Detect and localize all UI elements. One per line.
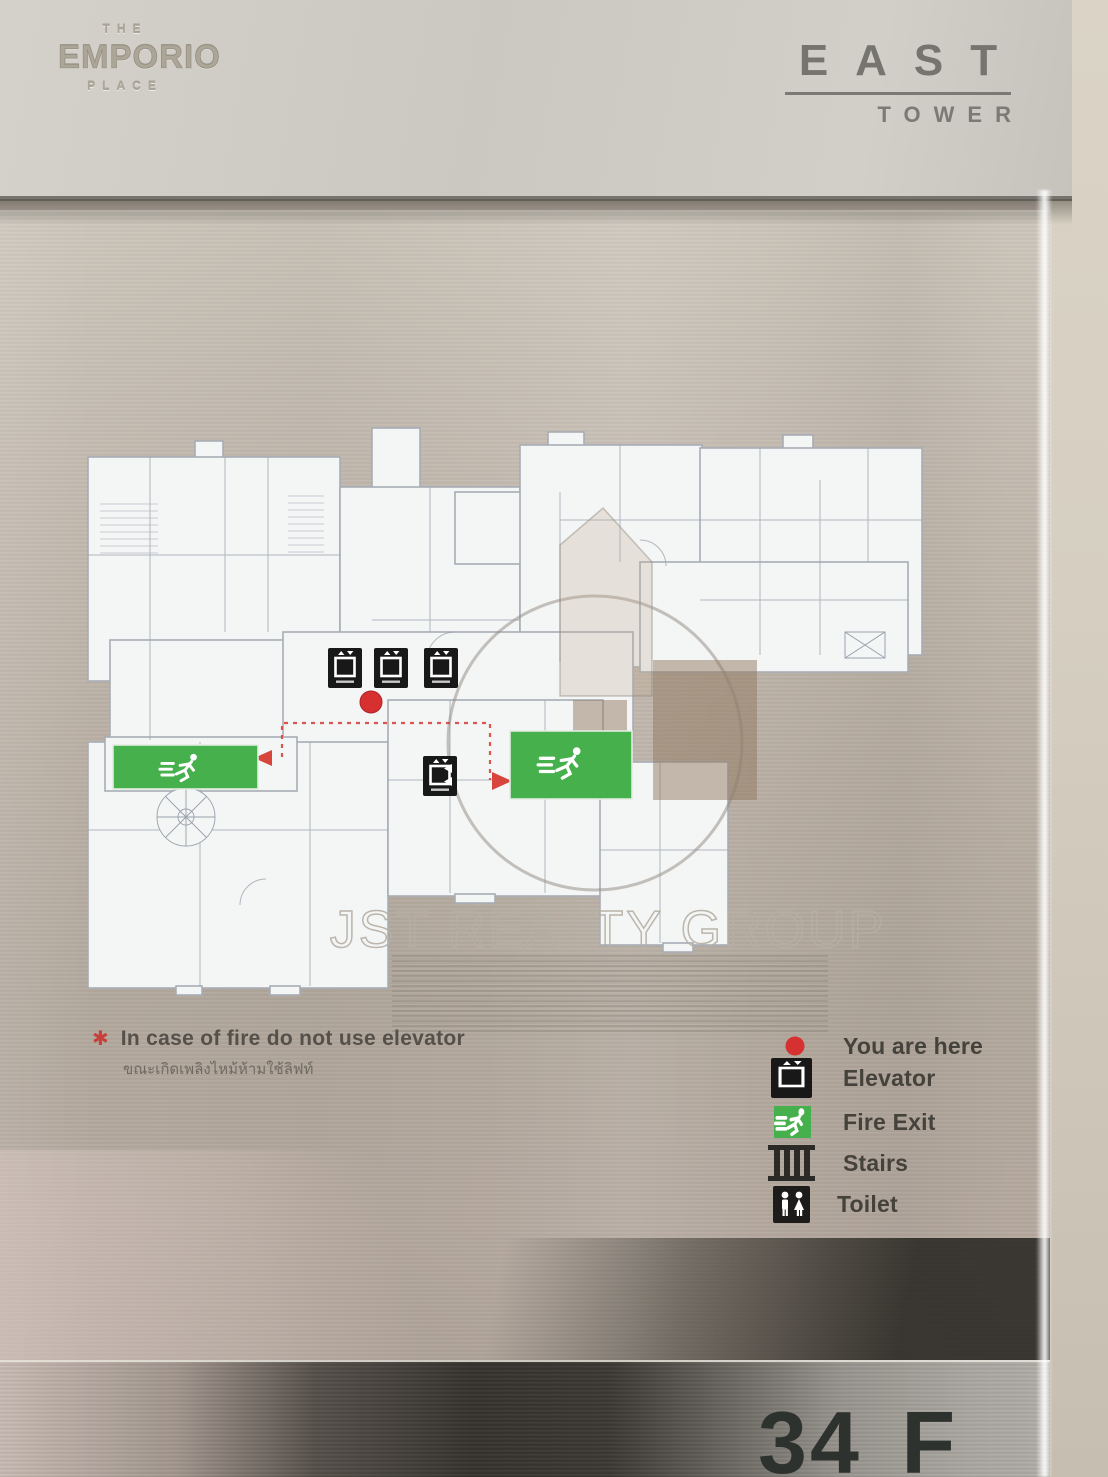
fire-notice: ✱ In case of fire do not use elevator ขณ… [92, 1027, 465, 1081]
header-sign: THE EMPORIO PLACE EAST TOWER [0, 0, 1072, 201]
emporio-logo: THE EMPORIO PLACE [58, 22, 192, 93]
legend-row-elevator: Elevator [755, 1056, 1055, 1100]
legend-label: Toilet [837, 1191, 898, 1218]
legend-row-toilet: Toilet [755, 1182, 1055, 1226]
you-are-here-dot [755, 1036, 835, 1056]
toilet-icon [773, 1186, 810, 1223]
legend-row-fire-exit: Fire Exit [755, 1100, 1055, 1144]
tower-name: EAST [785, 36, 1038, 86]
tower-sub: TOWER [785, 102, 1024, 128]
sign-photo: THE EMPORIO PLACE EAST TOWER [0, 0, 1108, 1477]
legend-row-stairs: Stairs [755, 1141, 1055, 1185]
tower-title: EAST TOWER [785, 36, 1011, 128]
fire-notice-english: In case of fire do not use elevator [121, 1027, 465, 1051]
fire-exit-icon [774, 1106, 811, 1138]
brand-emporio: EMPORIO [58, 38, 192, 76]
stairs-icon [768, 1145, 815, 1181]
header-shadow [0, 199, 1072, 225]
floor-number: 34 F [758, 1392, 1018, 1477]
elevator-icon [771, 1058, 812, 1098]
legend-label: Elevator [843, 1065, 935, 1092]
star-asterisk-icon: ✱ [92, 1027, 109, 1051]
legend-label: Stairs [843, 1150, 908, 1177]
fire-notice-thai: ขณะเกิดเพลิงไหม้ห้ามใช้ลิฟท์ [123, 1057, 465, 1081]
panel-reflection-dark [380, 1238, 1050, 1360]
brand-place: PLACE [58, 79, 192, 93]
tower-underline [785, 92, 1011, 95]
legend-label: Fire Exit [843, 1109, 936, 1136]
brand-the: THE [58, 22, 192, 36]
panel-edge-highlight [1036, 190, 1052, 1477]
